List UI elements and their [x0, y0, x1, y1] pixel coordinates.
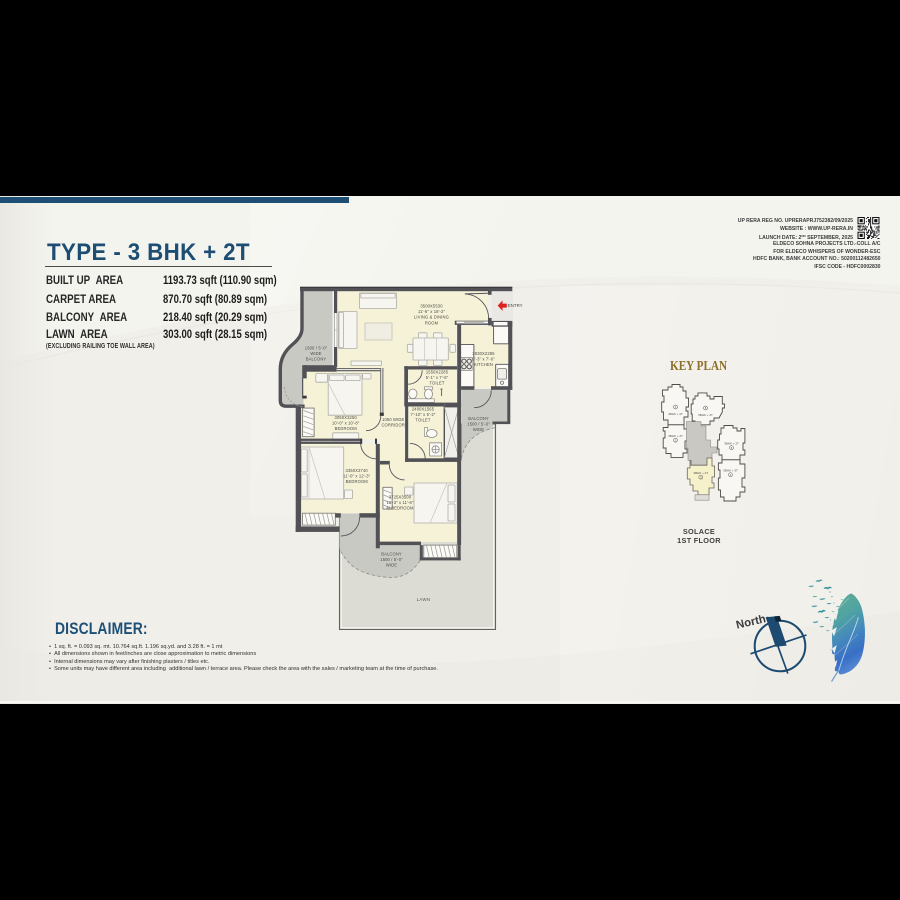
svg-text:1500 / 5′-0″: 1500 / 5′-0″ [467, 422, 490, 427]
svg-text:WIDE: WIDE [310, 351, 321, 356]
svg-text:LAWN: LAWN [417, 597, 431, 602]
svg-text:7′-10″ x 5′-2″: 7′-10″ x 5′-2″ [411, 412, 436, 417]
svg-text:3BHK + 2T: 3BHK + 2T [698, 413, 713, 417]
svg-text:5′-1″ x 7′-6″: 5′-1″ x 7′-6″ [426, 375, 449, 380]
svg-text:WIDE: WIDE [386, 563, 397, 568]
svg-text:1500 / 5′-0″: 1500 / 5′-0″ [305, 346, 328, 351]
svg-text:TOILET: TOILET [415, 418, 431, 423]
svg-text:ROOM: ROOM [425, 320, 439, 325]
svg-text:11′-0″ x 12′-3″: 11′-0″ x 12′-3″ [343, 474, 370, 479]
svg-text:ENTRY: ENTRY [508, 303, 523, 308]
svg-text:M.BEDROOM: M.BEDROOM [386, 506, 413, 511]
svg-text:12′-3″ x 11′-6″: 12′-3″ x 11′-6″ [386, 500, 413, 505]
svg-text:BALCONY: BALCONY [468, 416, 489, 421]
svg-text:LIVING & DINING: LIVING & DINING [414, 315, 449, 320]
svg-text:BALCONY: BALCONY [306, 357, 327, 362]
svg-text:11′-6″ x 18′-2″: 11′-6″ x 18′-2″ [418, 309, 445, 314]
svg-text:3500X5530: 3500X5530 [420, 304, 443, 309]
svg-text:BEDROOM: BEDROOM [346, 479, 369, 484]
svg-text:BEDROOM: BEDROOM [335, 426, 358, 431]
svg-text:CORRIDOR: CORRIDOR [381, 423, 405, 428]
svg-text:3350X3740: 3350X3740 [346, 468, 369, 473]
svg-text:3BHK + 2T: 3BHK + 2T [724, 442, 739, 446]
svg-text:1550X2285: 1550X2285 [426, 370, 449, 375]
svg-text:3BHK + 3T: 3BHK + 3T [723, 469, 738, 473]
svg-text:1500 / 5′-0″: 1500 / 5′-0″ [380, 557, 403, 562]
svg-text:KITCHEN: KITCHEN [474, 362, 493, 367]
svg-text:BALCONY: BALCONY [381, 552, 402, 557]
svg-text:3050X3250: 3050X3250 [335, 415, 358, 420]
svg-text:3BHK + 2T: 3BHK + 2T [693, 471, 708, 475]
svg-text:9′-3″ x 7′-6″: 9′-3″ x 7′-6″ [472, 357, 495, 362]
svg-text:1050 WIDE: 1050 WIDE [382, 417, 404, 422]
svg-text:2400X1565: 2400X1565 [412, 407, 435, 412]
svg-text:WIDE: WIDE [473, 427, 484, 432]
svg-text:3BHK + 2T: 3BHK + 2T [668, 412, 683, 416]
svg-text:10′-0″ x 10′-8″: 10′-0″ x 10′-8″ [332, 421, 360, 426]
svg-text:2830X2285: 2830X2285 [472, 351, 495, 356]
svg-text:3725X3500: 3725X3500 [389, 495, 412, 500]
svg-text:3BHK + 2T: 3BHK + 2T [668, 434, 683, 438]
svg-text:TOILET: TOILET [429, 381, 445, 386]
